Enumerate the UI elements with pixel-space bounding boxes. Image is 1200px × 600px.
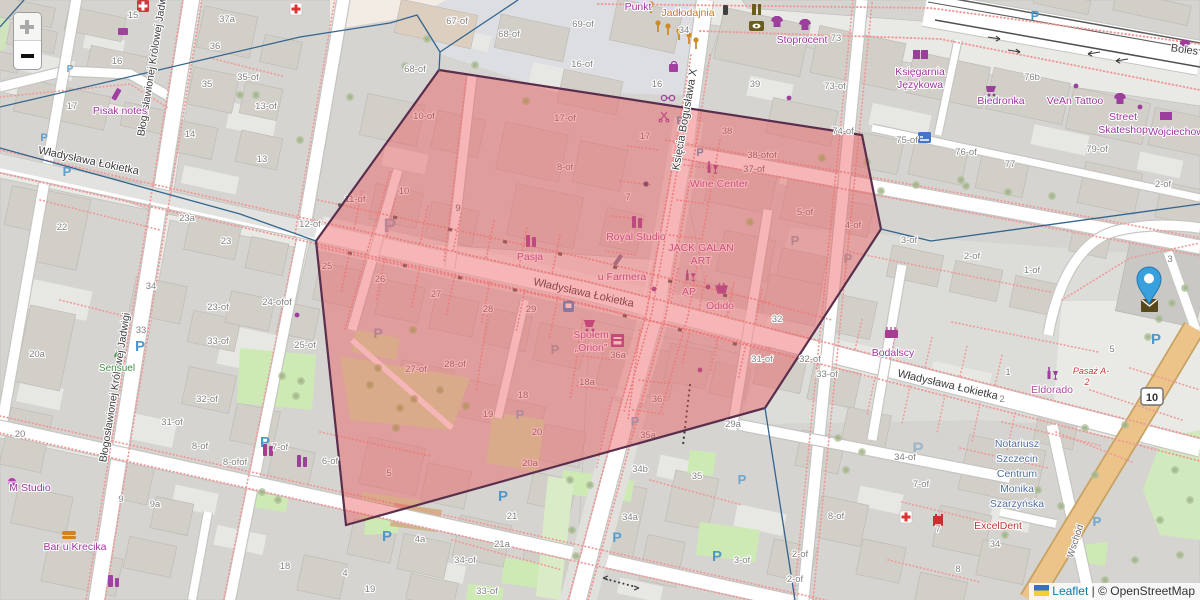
- svg-text:Eldorado: Eldorado: [1031, 384, 1073, 396]
- svg-text:18: 18: [280, 561, 291, 572]
- svg-text:16: 16: [652, 79, 663, 90]
- svg-text:Sensuel: Sensuel: [99, 363, 135, 374]
- svg-text:1: 1: [1005, 367, 1010, 378]
- svg-text:12-of: 12-of: [299, 219, 321, 230]
- svg-text:39: 39: [750, 79, 761, 90]
- svg-text:Wojciechow: Wojciechow: [1148, 126, 1200, 138]
- svg-text:Szczecin: Szczecin: [996, 453, 1038, 465]
- svg-text:ExcelDent: ExcelDent: [974, 520, 1022, 532]
- svg-text:P: P: [1093, 514, 1102, 529]
- svg-text:22: 22: [57, 222, 68, 233]
- svg-text:23a: 23a: [179, 213, 196, 224]
- svg-text:4a: 4a: [415, 534, 426, 545]
- svg-text:34: 34: [679, 25, 690, 36]
- svg-text:2: 2: [1083, 377, 1089, 387]
- svg-text:2-of: 2-of: [1155, 179, 1172, 190]
- svg-text:33-of: 33-of: [476, 586, 498, 597]
- svg-text:68-of: 68-of: [498, 29, 520, 40]
- svg-text:Księgarnia: Księgarnia: [895, 66, 945, 78]
- svg-text:77: 77: [1005, 159, 1016, 170]
- svg-text:Monika: Monika: [1000, 483, 1034, 495]
- svg-text:P: P: [135, 338, 145, 355]
- svg-text:21: 21: [507, 511, 518, 522]
- svg-text:67-of: 67-of: [446, 16, 468, 27]
- svg-text:9: 9: [118, 494, 123, 505]
- svg-text:3: 3: [1167, 254, 1172, 265]
- svg-text:Stoprocent: Stoprocent: [777, 34, 828, 46]
- svg-text:31-of: 31-of: [161, 417, 183, 428]
- svg-text:34a: 34a: [622, 512, 639, 523]
- svg-text:8-of: 8-of: [192, 441, 209, 452]
- svg-text:31-of: 31-of: [751, 354, 773, 365]
- svg-text:P: P: [1151, 331, 1161, 348]
- svg-text:73-of: 73-of: [824, 81, 846, 92]
- svg-text:Punkt: Punkt: [625, 1, 652, 13]
- svg-text:32-of: 32-of: [196, 394, 218, 405]
- svg-text:1-of: 1-of: [1024, 265, 1041, 276]
- svg-text:P: P: [63, 164, 72, 179]
- svg-text:75-of: 75-of: [896, 135, 918, 146]
- svg-text:Street: Street: [1109, 111, 1137, 123]
- svg-text:Jadłodajnia: Jadłodajnia: [661, 7, 714, 19]
- svg-text:7-of: 7-of: [272, 442, 289, 453]
- svg-text:P: P: [1031, 8, 1040, 23]
- svg-text:Pisak notes: Pisak notes: [93, 105, 147, 117]
- svg-text:23: 23: [221, 236, 232, 247]
- svg-text:Skateshop: Skateshop: [1098, 124, 1148, 136]
- svg-text:M Studio: M Studio: [9, 482, 51, 494]
- svg-text:6-of: 6-of: [322, 456, 339, 467]
- svg-text:69-of: 69-of: [572, 19, 594, 30]
- svg-text:Bar u Krecika: Bar u Krecika: [43, 541, 106, 553]
- svg-text:P: P: [67, 64, 74, 75]
- svg-text:34: 34: [146, 281, 157, 292]
- svg-text:P: P: [40, 132, 47, 144]
- svg-text:9a: 9a: [150, 499, 161, 510]
- svg-text:33: 33: [136, 325, 147, 336]
- svg-text:14: 14: [185, 129, 196, 140]
- svg-text:Biedronka: Biedronka: [977, 95, 1024, 107]
- svg-text:35-of: 35-of: [237, 72, 259, 83]
- svg-text:34-of: 34-of: [454, 555, 476, 566]
- svg-text:35: 35: [202, 79, 213, 90]
- svg-text:20: 20: [15, 429, 26, 440]
- svg-text:25-of: 25-of: [294, 340, 316, 351]
- svg-text:33-of: 33-of: [816, 369, 838, 380]
- svg-text:10: 10: [1146, 392, 1158, 404]
- svg-text:13-of: 13-of: [255, 101, 277, 112]
- svg-text:2-of: 2-of: [964, 251, 981, 262]
- svg-text:29a: 29a: [725, 419, 742, 430]
- svg-text:15: 15: [128, 10, 139, 21]
- svg-text:4: 4: [342, 568, 347, 579]
- svg-text:23-of: 23-of: [207, 302, 229, 313]
- svg-text:76b: 76b: [1024, 72, 1040, 83]
- svg-text:21a: 21a: [494, 539, 511, 550]
- svg-text:Językowa: Językowa: [897, 79, 943, 91]
- svg-text:73: 73: [831, 33, 842, 44]
- svg-text:76-of: 76-of: [955, 147, 977, 158]
- svg-text:37a: 37a: [219, 14, 236, 25]
- svg-text:2-of: 2-of: [787, 574, 804, 585]
- svg-text:P: P: [712, 548, 722, 565]
- svg-text:3-of: 3-of: [734, 555, 751, 566]
- svg-text:2-of: 2-of: [792, 549, 809, 560]
- svg-text:79-of: 79-of: [1086, 144, 1108, 155]
- svg-text:2: 2: [999, 394, 1004, 405]
- svg-text:32: 32: [772, 314, 783, 325]
- svg-text:36: 36: [210, 41, 221, 52]
- svg-text:8-of: 8-of: [828, 511, 845, 522]
- svg-text:74-of: 74-of: [832, 126, 854, 137]
- svg-text:34b: 34b: [632, 464, 648, 475]
- svg-text:Szarzyńska: Szarzyńska: [990, 498, 1044, 510]
- svg-text:Notariusz: Notariusz: [995, 438, 1039, 450]
- svg-text:3-of: 3-of: [901, 235, 918, 246]
- svg-text:33-of: 33-of: [207, 336, 229, 347]
- svg-text:7-of: 7-of: [913, 479, 930, 490]
- svg-text:8: 8: [955, 564, 960, 575]
- svg-text:34-of: 34-of: [894, 452, 916, 463]
- svg-text:32-of: 32-of: [799, 354, 821, 365]
- svg-text:19: 19: [365, 584, 376, 595]
- svg-text:16-of: 16-of: [571, 59, 593, 70]
- svg-text:Pasaż A-: Pasaż A-: [1073, 366, 1109, 376]
- svg-text:34: 34: [990, 539, 1001, 550]
- svg-text:17: 17: [67, 101, 78, 112]
- svg-text:13: 13: [257, 154, 268, 165]
- svg-text:Centrum: Centrum: [997, 468, 1038, 480]
- svg-text:20a: 20a: [29, 349, 46, 360]
- svg-text:P: P: [498, 488, 508, 505]
- svg-text:P: P: [612, 529, 621, 545]
- svg-text:24-ofof: 24-ofof: [262, 297, 292, 308]
- svg-text:7: 7: [935, 524, 940, 535]
- svg-text:16: 16: [112, 56, 123, 67]
- svg-text:5: 5: [1109, 344, 1114, 355]
- svg-text:P: P: [738, 472, 747, 487]
- svg-text:35: 35: [692, 471, 703, 482]
- svg-text:8-ofof: 8-ofof: [223, 457, 248, 468]
- svg-text:68-of: 68-of: [404, 64, 426, 75]
- svg-text:P: P: [382, 528, 392, 545]
- svg-text:Bodalscy: Bodalscy: [872, 347, 915, 359]
- svg-text:VeAn Tattoo: VeAn Tattoo: [1047, 95, 1104, 107]
